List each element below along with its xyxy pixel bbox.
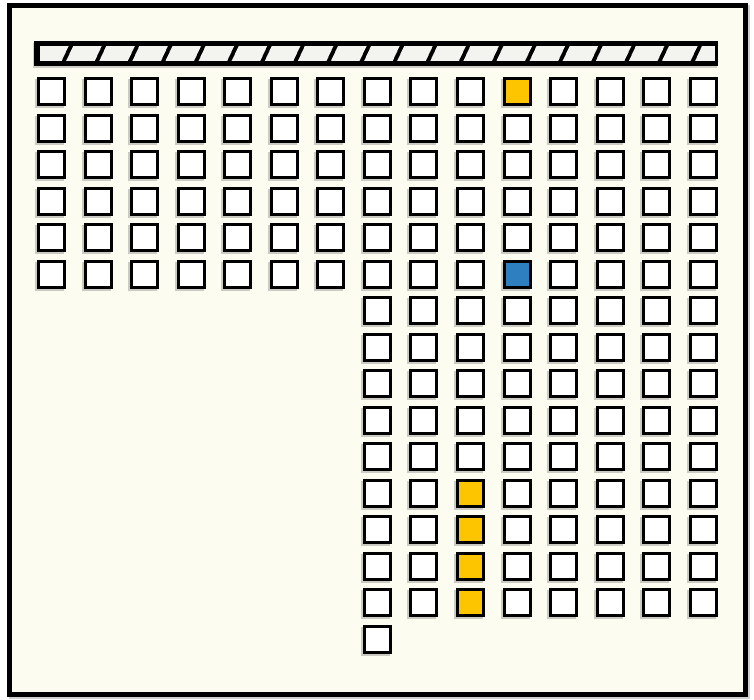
- grid-cell[interactable]: [409, 406, 438, 435]
- grid-cell[interactable]: [596, 77, 625, 106]
- grid-cell[interactable]: [596, 187, 625, 216]
- grid-cell[interactable]: [689, 77, 718, 106]
- grid-cell[interactable]: [363, 442, 392, 471]
- grid-cell[interactable]: [642, 187, 671, 216]
- grid-cell[interactable]: [689, 333, 718, 362]
- grid-cell[interactable]: [689, 369, 718, 398]
- grid-cell[interactable]: [549, 296, 578, 325]
- grid-cell[interactable]: [37, 260, 66, 289]
- grid-cell[interactable]: [37, 187, 66, 216]
- grid-cell[interactable]: [363, 552, 392, 581]
- grid-cell[interactable]: [689, 223, 718, 252]
- grid-cell[interactable]: [689, 552, 718, 581]
- grid-cell[interactable]: [363, 77, 392, 106]
- grid-cell[interactable]: [363, 150, 392, 179]
- grid-cell[interactable]: [223, 150, 252, 179]
- grid-cell[interactable]: [456, 187, 485, 216]
- grid-cell[interactable]: [503, 369, 532, 398]
- grid-cell[interactable]: [503, 479, 532, 508]
- grid-cell[interactable]: [363, 625, 392, 654]
- grid-cell[interactable]: [270, 77, 299, 106]
- grid-cell[interactable]: [130, 223, 159, 252]
- grid-cell[interactable]: [642, 333, 671, 362]
- grid-cell[interactable]: [549, 369, 578, 398]
- grid-cell[interactable]: [409, 296, 438, 325]
- grid-cell-yellow[interactable]: [456, 552, 485, 581]
- grid-cell[interactable]: [549, 552, 578, 581]
- grid-cell[interactable]: [409, 333, 438, 362]
- grid-cell[interactable]: [689, 406, 718, 435]
- grid-cell[interactable]: [223, 187, 252, 216]
- grid-cell[interactable]: [596, 150, 625, 179]
- grid-cell[interactable]: [503, 588, 532, 617]
- grid-cell[interactable]: [503, 552, 532, 581]
- grid-cell[interactable]: [84, 187, 113, 216]
- grid-cell[interactable]: [37, 150, 66, 179]
- grid-cell[interactable]: [596, 515, 625, 544]
- grid-cell[interactable]: [409, 479, 438, 508]
- grid-cell[interactable]: [270, 223, 299, 252]
- grid-cell[interactable]: [409, 77, 438, 106]
- grid-cell[interactable]: [642, 223, 671, 252]
- grid-cell[interactable]: [177, 77, 206, 106]
- floor-plan-canvas: [0, 0, 754, 700]
- grid-cell[interactable]: [363, 114, 392, 143]
- grid-cell[interactable]: [549, 333, 578, 362]
- grid-cell[interactable]: [456, 114, 485, 143]
- grid-cell[interactable]: [642, 515, 671, 544]
- grid-cell[interactable]: [596, 442, 625, 471]
- grid-cell[interactable]: [316, 187, 345, 216]
- grid-cell[interactable]: [177, 114, 206, 143]
- grid-cell[interactable]: [409, 150, 438, 179]
- grid-cell[interactable]: [456, 223, 485, 252]
- grid-cell[interactable]: [409, 369, 438, 398]
- grid-cell[interactable]: [456, 77, 485, 106]
- grid-cell[interactable]: [363, 588, 392, 617]
- grid-cell[interactable]: [689, 187, 718, 216]
- grid-cell[interactable]: [37, 223, 66, 252]
- grid-cell[interactable]: [130, 150, 159, 179]
- grid-cell[interactable]: [456, 260, 485, 289]
- grid-cell[interactable]: [503, 333, 532, 362]
- grid-cell[interactable]: [270, 260, 299, 289]
- grid-cell[interactable]: [596, 223, 625, 252]
- grid-cell[interactable]: [596, 588, 625, 617]
- grid-cell[interactable]: [130, 77, 159, 106]
- grid-cell[interactable]: [316, 260, 345, 289]
- grid-cell[interactable]: [596, 260, 625, 289]
- grid-cell[interactable]: [270, 187, 299, 216]
- grid-cell[interactable]: [596, 406, 625, 435]
- grid-cell[interactable]: [503, 515, 532, 544]
- grid-cell[interactable]: [223, 223, 252, 252]
- grid-cell[interactable]: [409, 588, 438, 617]
- grid-cell-yellow[interactable]: [456, 515, 485, 544]
- grid-cell[interactable]: [363, 296, 392, 325]
- grid-cell[interactable]: [596, 114, 625, 143]
- grid-cell[interactable]: [689, 442, 718, 471]
- grid-cell[interactable]: [549, 479, 578, 508]
- grid-cell[interactable]: [642, 552, 671, 581]
- grid-cell[interactable]: [409, 515, 438, 544]
- grid-cell[interactable]: [409, 187, 438, 216]
- grid-cell[interactable]: [316, 223, 345, 252]
- grid-cell[interactable]: [689, 150, 718, 179]
- grid-cell-blue[interactable]: [503, 260, 532, 289]
- grid-cell[interactable]: [689, 114, 718, 143]
- grid-cell[interactable]: [503, 296, 532, 325]
- grid-cell-yellow[interactable]: [456, 479, 485, 508]
- grid-cell[interactable]: [316, 150, 345, 179]
- grid-cell[interactable]: [549, 442, 578, 471]
- grid-cell-yellow[interactable]: [503, 77, 532, 106]
- grid-cell[interactable]: [549, 406, 578, 435]
- grid-cell[interactable]: [316, 114, 345, 143]
- grid-cell[interactable]: [130, 260, 159, 289]
- grid-cell[interactable]: [223, 114, 252, 143]
- grid-cell[interactable]: [456, 406, 485, 435]
- grid-cell[interactable]: [456, 296, 485, 325]
- grid-cell[interactable]: [503, 150, 532, 179]
- grid-cell[interactable]: [689, 588, 718, 617]
- grid-cell[interactable]: [456, 333, 485, 362]
- grid-cell[interactable]: [503, 114, 532, 143]
- grid-cell[interactable]: [642, 150, 671, 179]
- grid-cell[interactable]: [549, 515, 578, 544]
- grid-cell[interactable]: [549, 150, 578, 179]
- grid-cell[interactable]: [177, 260, 206, 289]
- grid-cell[interactable]: [223, 260, 252, 289]
- grid-cell[interactable]: [642, 406, 671, 435]
- grid-cell[interactable]: [84, 260, 113, 289]
- grid-cell[interactable]: [363, 223, 392, 252]
- grid-cell[interactable]: [363, 369, 392, 398]
- grid-cell[interactable]: [177, 187, 206, 216]
- grid-cell[interactable]: [689, 296, 718, 325]
- grid-cell[interactable]: [596, 333, 625, 362]
- grid-cell[interactable]: [642, 260, 671, 289]
- grid-cell[interactable]: [456, 150, 485, 179]
- grid-cell[interactable]: [596, 369, 625, 398]
- grid-cell[interactable]: [409, 442, 438, 471]
- grid-cell[interactable]: [642, 442, 671, 471]
- grid-cell[interactable]: [596, 479, 625, 508]
- grid-cell[interactable]: [409, 552, 438, 581]
- grid-cell[interactable]: [409, 260, 438, 289]
- grid-cell[interactable]: [503, 442, 532, 471]
- grid-cell[interactable]: [596, 552, 625, 581]
- grid-cell[interactable]: [363, 406, 392, 435]
- grid-cell[interactable]: [84, 77, 113, 106]
- grid-cell[interactable]: [270, 114, 299, 143]
- cell-grid: [0, 0, 754, 700]
- grid-cell[interactable]: [130, 114, 159, 143]
- grid-cell[interactable]: [689, 515, 718, 544]
- grid-cell[interactable]: [316, 77, 345, 106]
- grid-cell[interactable]: [456, 369, 485, 398]
- grid-cell[interactable]: [689, 479, 718, 508]
- grid-cell[interactable]: [642, 296, 671, 325]
- grid-cell[interactable]: [177, 150, 206, 179]
- grid-cell[interactable]: [37, 77, 66, 106]
- grid-cell[interactable]: [84, 223, 113, 252]
- grid-cell[interactable]: [503, 223, 532, 252]
- grid-cell[interactable]: [363, 260, 392, 289]
- grid-cell[interactable]: [549, 260, 578, 289]
- grid-cell[interactable]: [642, 77, 671, 106]
- grid-cell[interactable]: [409, 114, 438, 143]
- grid-cell[interactable]: [223, 77, 252, 106]
- grid-cell[interactable]: [549, 588, 578, 617]
- grid-cell[interactable]: [37, 114, 66, 143]
- grid-cell[interactable]: [549, 223, 578, 252]
- grid-cell[interactable]: [409, 223, 438, 252]
- grid-cell[interactable]: [130, 187, 159, 216]
- grid-cell[interactable]: [456, 442, 485, 471]
- grid-cell[interactable]: [363, 187, 392, 216]
- grid-cell[interactable]: [270, 150, 299, 179]
- grid-cell[interactable]: [503, 187, 532, 216]
- grid-cell-yellow[interactable]: [456, 588, 485, 617]
- grid-cell[interactable]: [642, 369, 671, 398]
- grid-cell[interactable]: [84, 114, 113, 143]
- grid-cell[interactable]: [363, 479, 392, 508]
- grid-cell[interactable]: [549, 114, 578, 143]
- grid-cell[interactable]: [84, 150, 113, 179]
- grid-cell[interactable]: [642, 479, 671, 508]
- grid-cell[interactable]: [177, 223, 206, 252]
- grid-cell[interactable]: [363, 333, 392, 362]
- grid-cell[interactable]: [642, 588, 671, 617]
- grid-cell[interactable]: [689, 260, 718, 289]
- grid-cell[interactable]: [549, 77, 578, 106]
- grid-cell[interactable]: [503, 406, 532, 435]
- grid-cell[interactable]: [642, 114, 671, 143]
- grid-cell[interactable]: [596, 296, 625, 325]
- grid-cell[interactable]: [549, 187, 578, 216]
- grid-cell[interactable]: [363, 515, 392, 544]
